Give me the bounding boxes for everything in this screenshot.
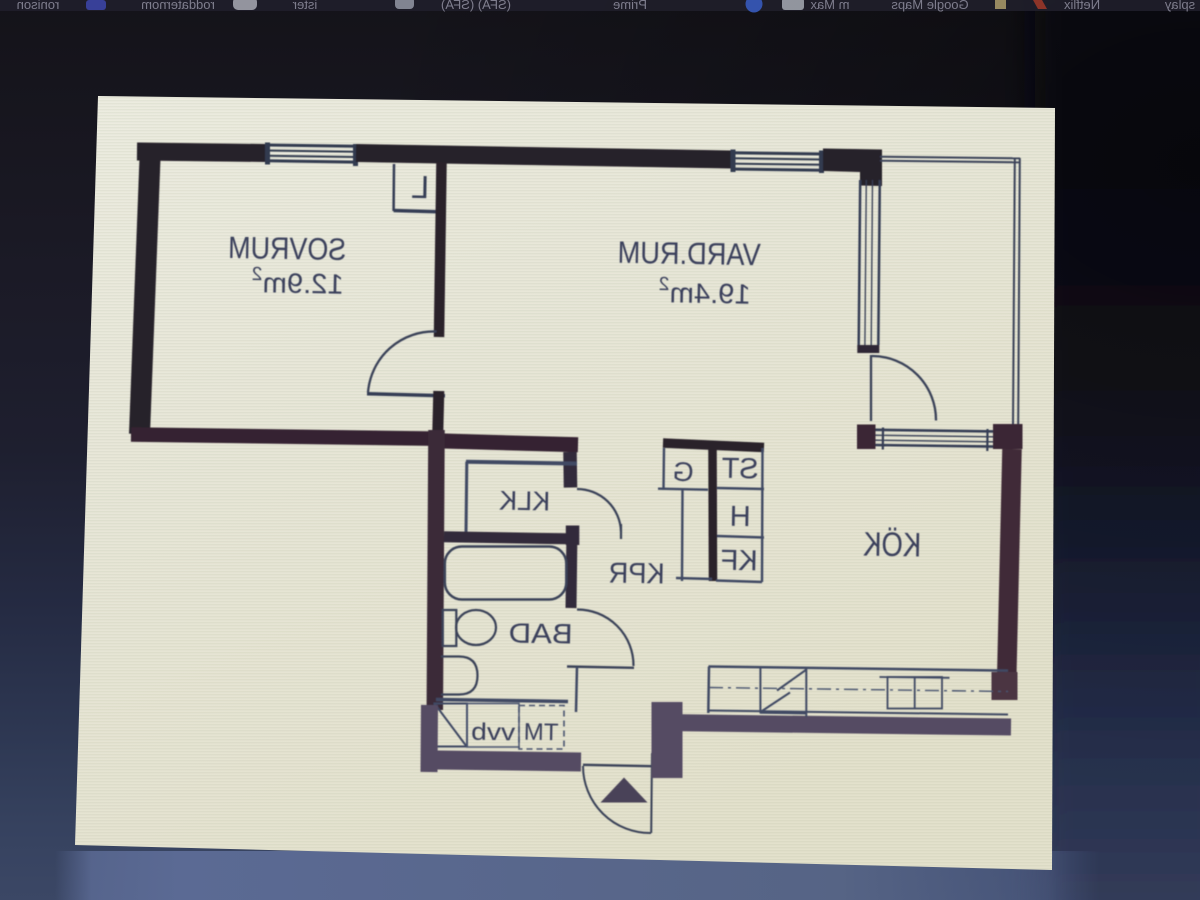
svg-text:19.4m: 19.4m (669, 277, 751, 309)
svg-text:ister: ister (292, 0, 317, 12)
svg-text:KF: KF (720, 545, 758, 578)
svg-text:KLK: KLK (499, 486, 551, 517)
svg-text:SOVRUM: SOVRUM (228, 230, 347, 267)
svg-text:vvb: vvb (471, 719, 515, 747)
svg-text:splay: splay (1164, 0, 1195, 12)
svg-text:ST: ST (721, 453, 759, 486)
svg-text:ronison: ronison (17, 0, 60, 12)
svg-text:2: 2 (659, 274, 670, 295)
svg-text:BAD: BAD (508, 617, 573, 649)
svg-text:H: H (729, 501, 751, 533)
svg-text:m Max: m Max (810, 0, 850, 12)
svg-text:G: G (672, 457, 694, 487)
svg-text:TM: TM (524, 719, 559, 747)
svg-text:(SFA) (SFA): (SFA) (SFA) (441, 0, 511, 12)
svg-text:12.9m: 12.9m (262, 267, 344, 299)
svg-text:KÖK: KÖK (863, 525, 922, 564)
svg-text:KPR: KPR (608, 558, 665, 591)
svg-text:Google Maps: Google Maps (891, 0, 969, 12)
svg-text:Prime: Prime (613, 0, 647, 12)
svg-text:roddaternom: roddaternom (141, 0, 215, 12)
svg-text:Netflix: Netflix (1063, 0, 1100, 12)
svg-text:VARD.RUM: VARD.RUM (617, 235, 761, 272)
svg-text:2: 2 (252, 264, 263, 285)
svg-text:L: L (411, 169, 429, 205)
